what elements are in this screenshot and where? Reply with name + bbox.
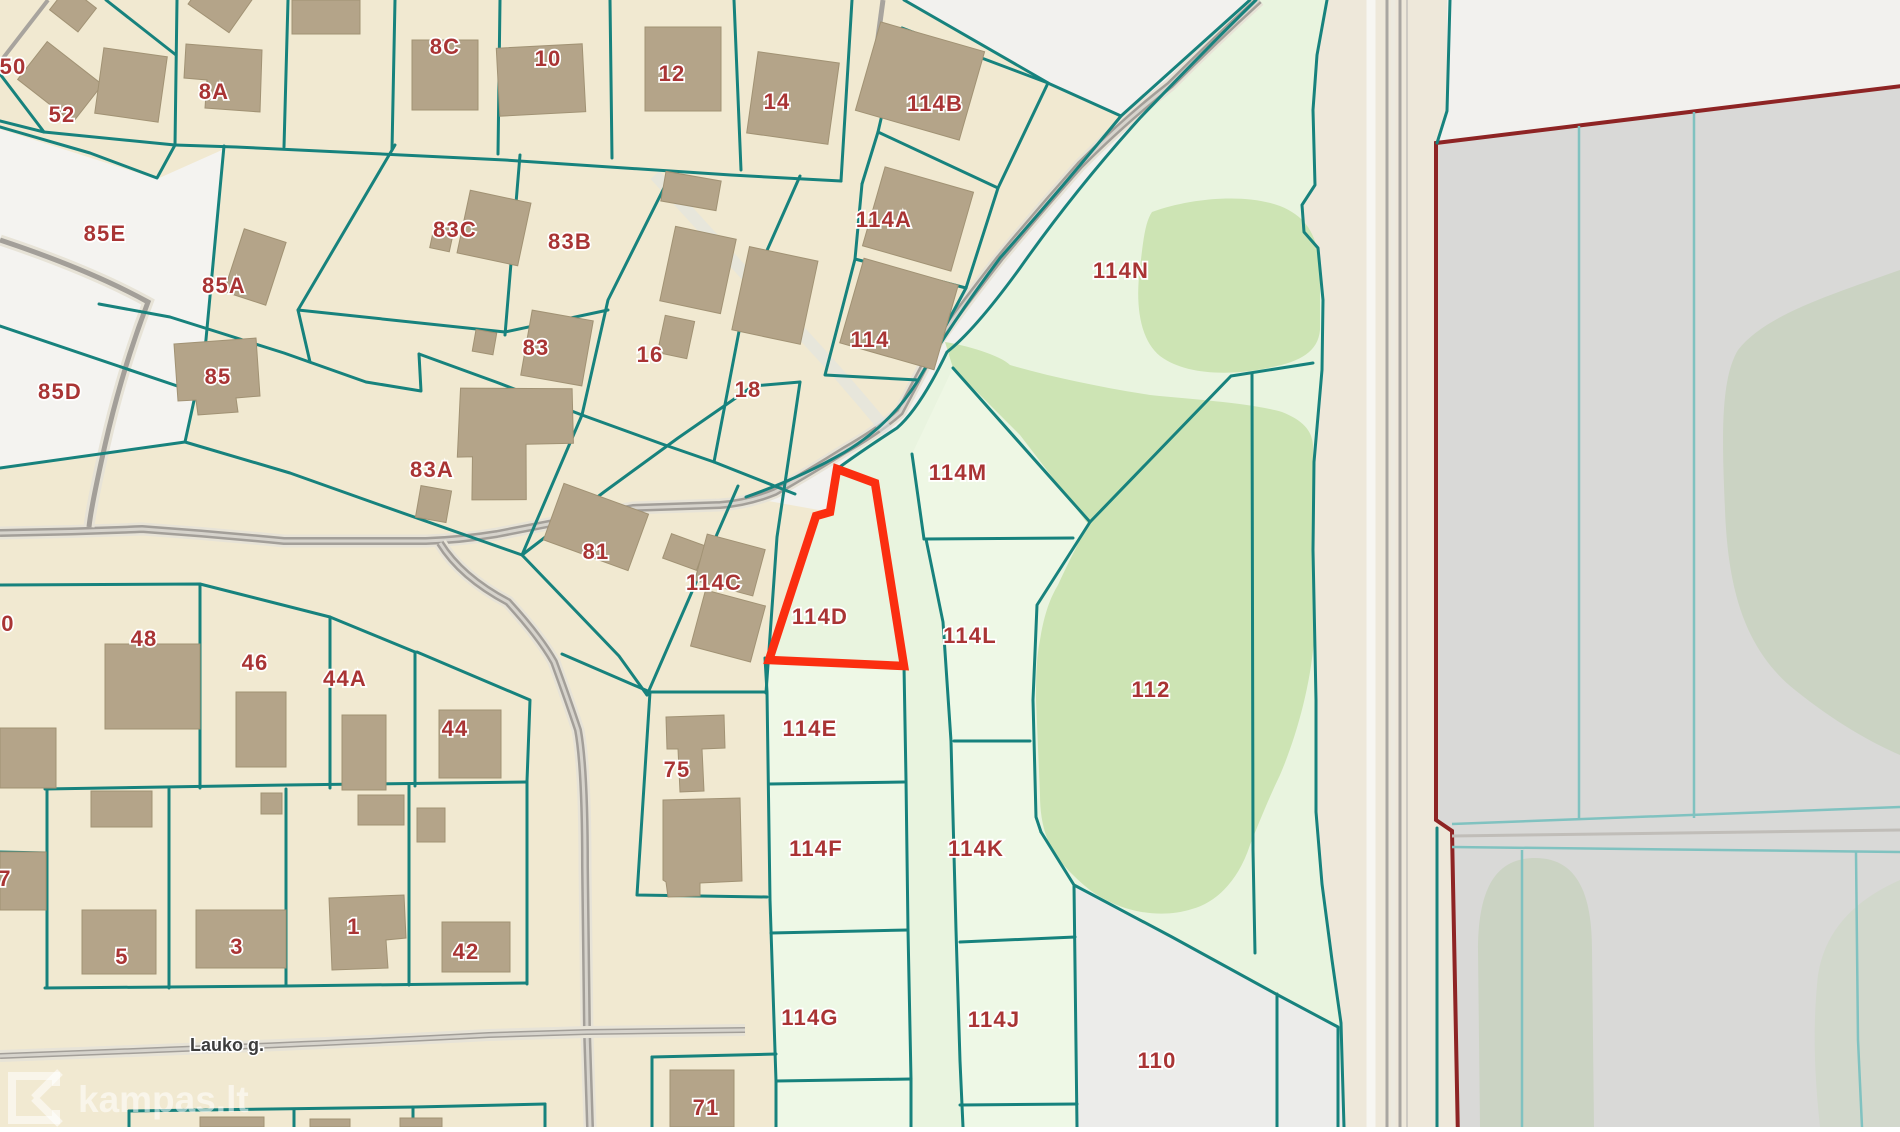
svg-text:114K: 114K bbox=[948, 836, 1004, 861]
svg-text:83B: 83B bbox=[548, 229, 592, 254]
svg-text:0: 0 bbox=[1, 611, 14, 636]
svg-text:85D: 85D bbox=[38, 379, 82, 404]
svg-text:kampas.lt: kampas.lt bbox=[78, 1079, 249, 1120]
svg-text:85A: 85A bbox=[202, 273, 246, 298]
svg-text:85E: 85E bbox=[84, 221, 127, 246]
svg-text:114J: 114J bbox=[968, 1007, 1021, 1032]
svg-text:81: 81 bbox=[583, 539, 610, 564]
svg-text:52: 52 bbox=[49, 102, 76, 127]
svg-text:83: 83 bbox=[523, 335, 550, 360]
svg-text:114N: 114N bbox=[1093, 258, 1149, 283]
svg-text:71: 71 bbox=[693, 1095, 720, 1120]
svg-text:114L: 114L bbox=[943, 623, 997, 648]
svg-text:42: 42 bbox=[453, 939, 480, 964]
svg-text:8A: 8A bbox=[199, 79, 230, 104]
svg-text:114M: 114M bbox=[929, 460, 988, 485]
svg-text:83C: 83C bbox=[433, 217, 477, 242]
svg-text:114E: 114E bbox=[783, 716, 838, 741]
svg-text:48: 48 bbox=[131, 626, 158, 651]
svg-text:16: 16 bbox=[637, 342, 664, 367]
svg-text:18: 18 bbox=[735, 377, 762, 402]
svg-text:114A: 114A bbox=[856, 207, 912, 232]
svg-text:46: 46 bbox=[242, 650, 269, 675]
svg-text:44A: 44A bbox=[323, 666, 367, 691]
svg-text:12: 12 bbox=[659, 61, 686, 86]
svg-text:83A: 83A bbox=[410, 457, 454, 482]
svg-text:44: 44 bbox=[442, 716, 469, 741]
svg-text:1: 1 bbox=[347, 914, 360, 939]
svg-text:8C: 8C bbox=[430, 34, 461, 59]
svg-text:114: 114 bbox=[850, 327, 889, 352]
svg-text:7: 7 bbox=[0, 866, 12, 891]
svg-text:50: 50 bbox=[0, 54, 26, 79]
svg-text:114D: 114D bbox=[792, 604, 848, 629]
svg-text:Lauko g.: Lauko g. bbox=[190, 1035, 264, 1055]
svg-text:110: 110 bbox=[1137, 1048, 1176, 1073]
svg-text:10: 10 bbox=[535, 46, 562, 71]
svg-text:114C: 114C bbox=[686, 570, 742, 595]
svg-text:114B: 114B bbox=[907, 91, 963, 116]
svg-text:14: 14 bbox=[764, 89, 791, 114]
svg-text:114G: 114G bbox=[781, 1005, 838, 1030]
svg-text:112: 112 bbox=[1131, 677, 1170, 702]
svg-text:75: 75 bbox=[664, 757, 691, 782]
svg-text:5: 5 bbox=[115, 944, 128, 969]
svg-text:3: 3 bbox=[230, 934, 243, 959]
svg-text:114F: 114F bbox=[789, 836, 843, 861]
svg-text:85: 85 bbox=[205, 364, 232, 389]
